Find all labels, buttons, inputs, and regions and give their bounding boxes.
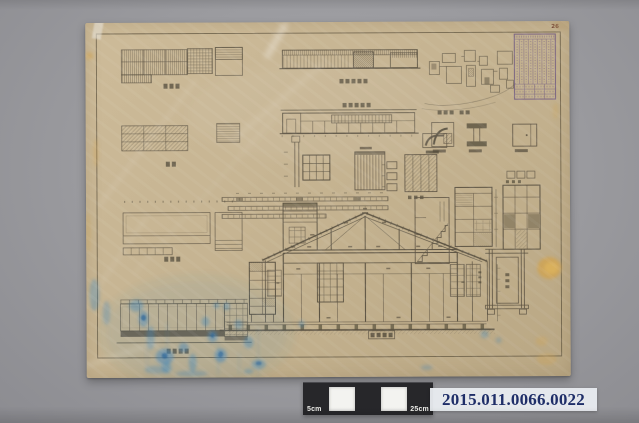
drawing-stair-plan: [405, 155, 437, 192]
drawing-column-section: [467, 123, 487, 152]
scale-segment: [381, 387, 407, 411]
drawing-door-panel: [513, 124, 537, 152]
title-block-stamp: [514, 34, 555, 99]
scale-segment: [355, 387, 381, 411]
drawing-roof-plan-1: [121, 50, 187, 83]
drawing-cabinet-elevation-1: [455, 187, 492, 246]
photo-top-shade: [0, 0, 639, 10]
drawing-door-frame: [478, 249, 528, 314]
scale-label-25cm: 25cm: [410, 406, 429, 413]
accession-number-label: 2015.011.0066.0022: [430, 388, 597, 411]
tape-residue: [92, 21, 104, 40]
architectural-drawing: 26: [85, 21, 571, 378]
caption-roof-plan: [163, 84, 179, 89]
drawing-roof-plan-3: [215, 47, 242, 75]
archive-photo: 26: [0, 0, 639, 423]
scale-segment: [329, 387, 355, 411]
scale-label-5cm: 5cm: [307, 406, 322, 413]
photographic-scale-bar: 5cm 25cm: [303, 382, 433, 415]
caption-ridge-detail: [164, 257, 180, 262]
drawing-cabinet-elevation-2: [494, 171, 540, 249]
drawing-roof-plan-2: [187, 49, 212, 74]
drawing-sheet: 26: [85, 21, 571, 378]
drawing-stair-section: [415, 197, 449, 263]
drawing-ridge-detail: [123, 201, 242, 255]
drawing-beam-details: [222, 193, 388, 219]
caption-roof-framing: [166, 162, 176, 167]
